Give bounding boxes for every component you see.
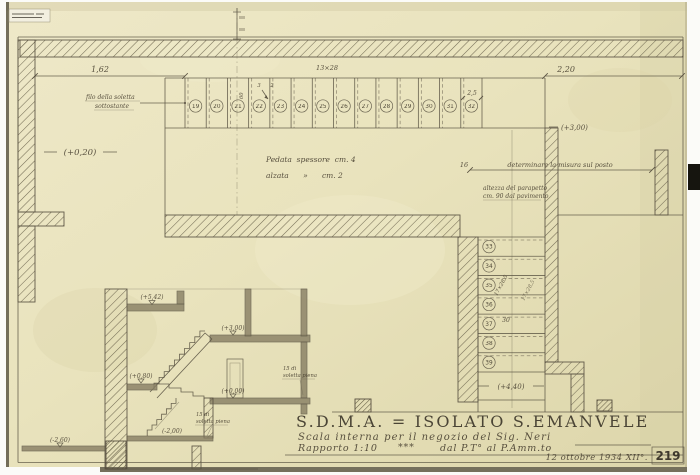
section-floor-basement-mid: [127, 436, 213, 441]
column-section-a: [355, 399, 371, 412]
tread-number: 19: [192, 104, 200, 110]
dim-width-label: 60: [239, 92, 245, 99]
tread-number: 31: [446, 104, 454, 110]
section-floor-ground: [210, 398, 310, 404]
paper-bottom-shadow: [100, 467, 687, 472]
sheet-number: 219: [655, 449, 680, 463]
drawing-date: 12 ottobre 1934 XII°.: [546, 453, 648, 463]
section-slab-top: [127, 304, 184, 311]
wall-middle: [165, 215, 460, 237]
note-slab-a-line2: soletta piena: [196, 419, 230, 425]
tread-number: 27: [362, 104, 370, 110]
note-parapetto-line2: cm. 90 dal pavimento: [483, 193, 549, 200]
section-floor-basement-low: [22, 446, 105, 451]
dim-thirty-label: 30: [502, 317, 510, 324]
level-arrival-label: (+4,40): [498, 383, 525, 391]
tread-number: 23: [277, 104, 285, 110]
note-slab-b-line2: soletta piena: [283, 373, 317, 379]
drawing-scale: Rapporto 1:10: [297, 443, 378, 454]
note-filo-line1: filo della soletta: [85, 94, 135, 101]
note-filo-line2: sottostante: [95, 103, 129, 110]
wall-stair-left: [458, 237, 478, 402]
dim-left-label: 1,62: [91, 65, 109, 74]
note-pedata: Pedata spessore cm. 4: [265, 155, 356, 164]
tread-number: 33: [485, 245, 493, 251]
dim-treads-label: 13×28: [316, 64, 338, 72]
wall-left-jog: [18, 212, 64, 226]
dim-right-label: 2,20: [556, 65, 575, 74]
note-parapetto-line1: altezza del parapetto: [483, 185, 548, 192]
dim-nosing-label: 2,5: [466, 90, 477, 97]
section-landing: [127, 384, 157, 390]
scanned-drawing-sheet: 1920212223242526272829303132 33343536373…: [0, 0, 700, 475]
note-alzata: alzata » cm. 2: [266, 171, 343, 180]
scan-edge-notch: [688, 164, 700, 190]
level-landing-label: (+3,00): [561, 124, 588, 132]
tread-number: 22: [256, 104, 264, 110]
dim-step-b: 2: [269, 83, 273, 89]
tread-number: 25: [319, 104, 327, 110]
tread-number: 28: [383, 104, 391, 110]
section-column-base: [192, 446, 201, 469]
level-top-label: (+5,42): [140, 294, 164, 301]
tread-number: 36: [485, 303, 493, 309]
section-support-wall: [204, 398, 213, 438]
section-pier: [106, 441, 126, 469]
wall-top: [20, 40, 683, 57]
wall-right-pier: [655, 150, 668, 215]
drawing-canvas: 1920212223242526272829303132 33343536373…: [0, 0, 700, 475]
tread-number: 29: [404, 104, 412, 110]
paper-left-seam: [6, 2, 9, 467]
tread-number: 21: [234, 104, 242, 110]
wall-stub-down: [571, 374, 584, 412]
scale-marks: ***: [398, 442, 415, 453]
corner-stamp: [9, 9, 50, 22]
column-section-b: [597, 400, 612, 411]
drawing-title: S.D.M.A. = ISOLATO S.EMANVELE: [296, 412, 650, 431]
section-column-stub: [177, 291, 184, 304]
wall-stair-bottom-band: [545, 362, 584, 374]
tread-number: 26: [340, 104, 348, 110]
note-slab-b-line1: 15 di: [283, 366, 297, 372]
drawing-subtitle: Scala interna per il negozio del Sig. Ne…: [298, 432, 551, 443]
tread-number: 39: [485, 360, 493, 366]
section-column-b: [301, 289, 307, 336]
wall-left-lower: [18, 226, 35, 302]
level-basement-mid-label: (-2,00): [162, 428, 183, 435]
tread-number: 38: [485, 341, 493, 347]
tread-number: 20: [213, 104, 221, 110]
note-misura: determinare la misura sul posto: [507, 161, 612, 169]
wall-left-upper: [18, 40, 35, 212]
tread-number: 34: [485, 264, 493, 270]
note-slab-a-line1: 15 di: [196, 412, 210, 418]
level-start-label: (+0,20): [64, 147, 97, 158]
tread-number: 37: [485, 322, 493, 328]
tread-number: 35: [485, 283, 493, 289]
section-slab-mezzanine: [210, 335, 310, 342]
tread-number: 24: [298, 104, 306, 110]
drawing-range: dal P.T° al P.Amm.to: [440, 443, 552, 454]
section-column-a: [245, 289, 251, 336]
dim-sixteen-label: 16: [460, 161, 468, 169]
tread-number: 30: [425, 104, 433, 110]
tread-number: 32: [468, 104, 476, 110]
